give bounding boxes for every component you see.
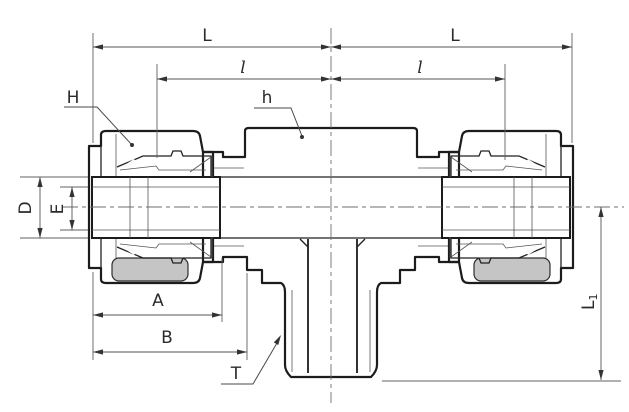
label-l-right: l [417,58,422,78]
label-E: E [48,204,68,215]
left-tube [92,177,220,238]
leader-T [221,343,277,384]
right-nut-thread-shadow [474,258,550,281]
label-A: A [152,291,164,311]
leader-H-dot [130,143,134,147]
right-tube-body [442,177,570,238]
bore-chamfer-left [300,239,308,247]
label-L1: L1 [579,294,600,310]
label-h: h [262,88,273,108]
label-D: D [16,201,36,214]
bore-chamfer-right [357,239,365,247]
leader-h [254,108,302,136]
leader-h-dot [300,135,304,139]
label-L-right: L [450,26,460,46]
label-H: H [67,88,80,108]
branch-bore [308,239,357,375]
left-nut-thread-shadow [112,258,188,281]
label-L-left: L [202,26,212,46]
left-tube-body [92,177,220,238]
label-l-left: l [240,58,245,78]
label-L1-subscript: 1 [587,294,600,301]
right-tube [442,177,570,238]
drawing-canvas: L L l l H h D E A B T L1 [0,0,629,412]
fitting-dimension-drawing: L L l l H h D E A B T L1 [0,0,629,412]
label-T: T [230,364,242,384]
leader-H [64,107,132,145]
label-B: B [161,328,173,348]
